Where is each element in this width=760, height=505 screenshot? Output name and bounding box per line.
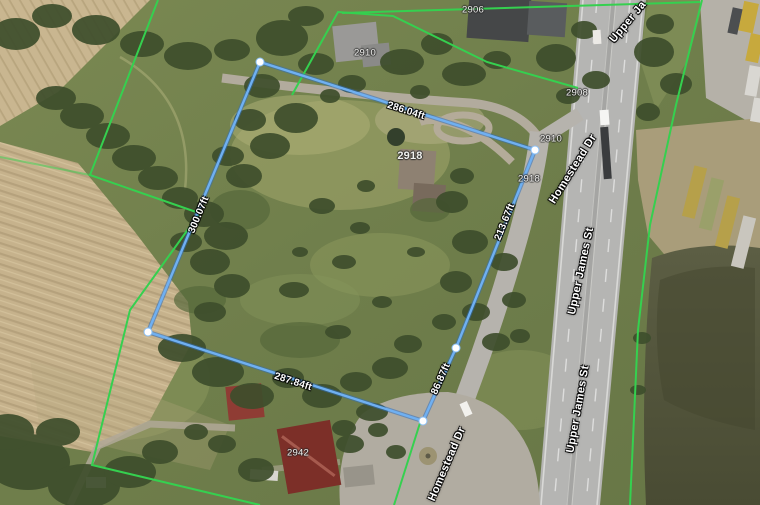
- street-label-upper-james-1: Upper James St: [566, 226, 596, 315]
- measurement-label-right-upper: 213.67ft: [493, 202, 518, 242]
- street-label-upper-james-partial: Upper Ja: [607, 0, 649, 45]
- measurement-label-top: 286.04ft: [386, 100, 426, 122]
- satellite-map[interactable]: 286.04ft 300.07ft 287.84ft 213.67ft 86.8…: [0, 0, 760, 505]
- house-number-2918-road: 2918: [518, 174, 540, 185]
- measurement-label-left: 300.07ft: [186, 195, 211, 235]
- measurement-label-bottom: 287.84ft: [273, 371, 313, 393]
- house-number-2942: 2942: [287, 448, 309, 459]
- map-labels: 286.04ft 300.07ft 287.84ft 213.67ft 86.8…: [0, 0, 760, 505]
- house-number-2910-road: 2910: [540, 134, 562, 145]
- measurement-label-right-lower: 86.87ft: [429, 362, 453, 397]
- house-number-2906: 2906: [462, 5, 484, 16]
- house-number-2908: 2908: [566, 88, 588, 99]
- house-number-2918-parcel: 2918: [397, 150, 422, 162]
- house-number-2910: 2910: [354, 48, 376, 59]
- street-label-upper-james-2: Upper James St: [564, 364, 591, 453]
- street-label-homestead-dr-lower: Homestead Dr: [426, 425, 468, 503]
